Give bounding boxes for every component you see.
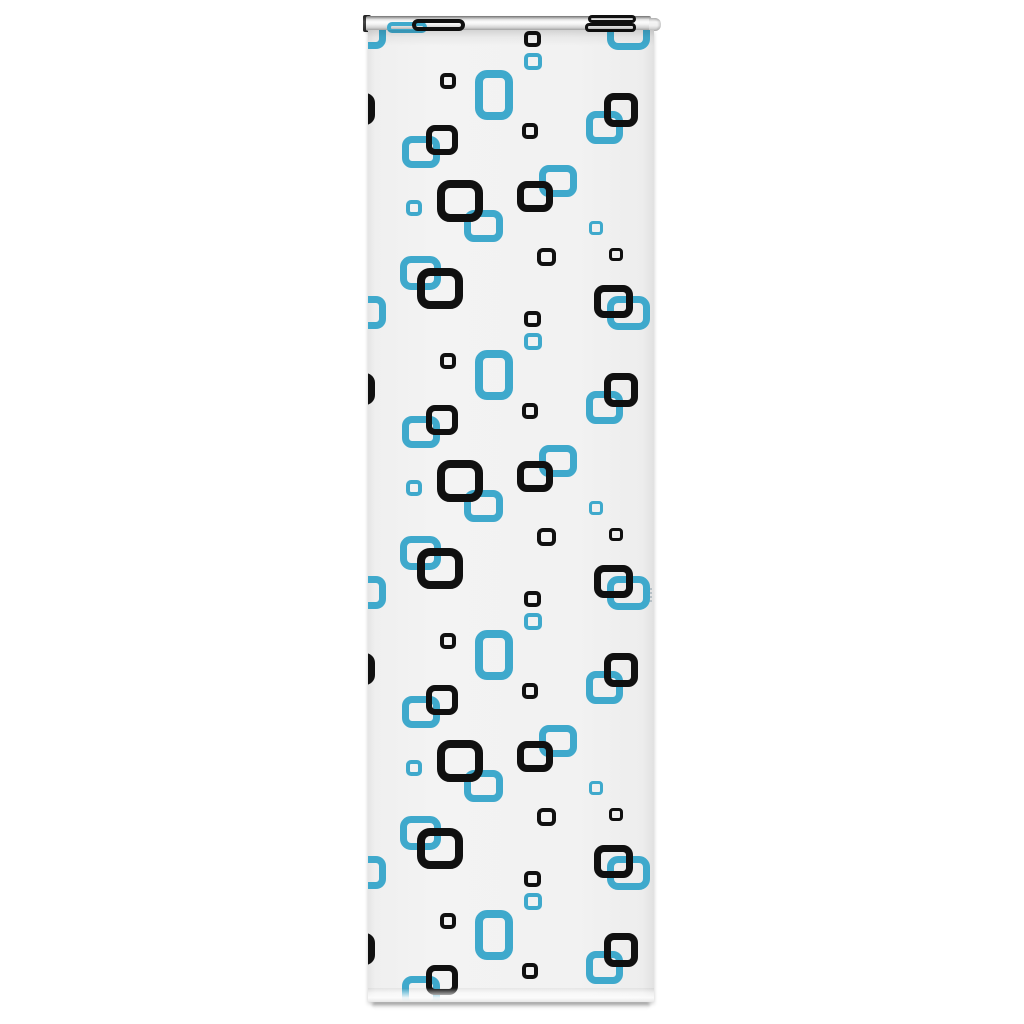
pattern-square-black [604,373,638,407]
pattern-square-black [426,125,458,155]
pattern-square-blue [368,576,386,609]
pattern-square-black [609,528,623,541]
pattern-square-blue [368,30,386,49]
pattern-square-black [609,248,623,261]
pattern-square-black [522,963,538,979]
pattern-square-blue [406,760,422,776]
pattern-square-black [440,913,456,929]
pattern-square-black [437,180,483,222]
pattern-square-blue [589,221,603,235]
pattern-square-black [368,93,375,125]
pattern-square-black [417,268,463,309]
wrapped-pattern-bar-black [412,19,465,31]
pattern-square-blue [589,501,603,515]
pattern-square-blue [475,350,513,400]
pattern-square-black [437,740,483,782]
pattern-square-black [368,933,375,965]
pattern-square-blue [475,630,513,680]
pattern-square-black [522,403,538,419]
pattern-square-black [426,685,458,715]
pattern-square-black [524,591,541,607]
pattern-square-blue [475,70,513,120]
pattern-square-blue [475,910,513,960]
pattern-square-black [537,808,556,826]
pattern-square-black [604,653,638,687]
pattern-square-black [609,808,623,821]
pattern-square-blue [524,613,542,630]
pattern-square-black [517,461,553,492]
pattern-square-black [537,528,556,546]
pattern-square-blue [524,333,542,350]
pattern-square-black [594,565,633,598]
pattern-square-black [524,311,541,327]
pattern-square-black [522,683,538,699]
pattern-square-black [437,460,483,502]
pattern-square-blue [368,856,386,889]
pattern-square-black [537,248,556,266]
pattern-square-black [417,548,463,589]
pattern-square-black [604,933,638,967]
pattern-square-black [524,871,541,887]
wrapped-pattern-bar-black [588,15,636,23]
pattern-square-black [517,741,553,772]
pattern-square-black [522,123,538,139]
pattern-square-blue [406,480,422,496]
pattern-square-black [594,845,633,878]
pattern-square-black [604,93,638,127]
blind-fabric [368,30,654,1002]
roller-blind-product-photo [0,0,1024,1024]
pattern-square-blue [589,781,603,795]
bottom-edge-shadow [372,1002,650,1009]
pattern-square-black [517,181,553,212]
pattern-square-black [426,405,458,435]
pattern-square-blue [368,296,386,329]
pattern-square-black [426,965,458,995]
pattern-square-black [524,31,541,47]
pattern-square-blue [607,30,650,50]
pattern-square-black [440,633,456,649]
pattern-square-blue [524,53,542,70]
pattern-square-black [368,653,375,685]
pattern-square-black [368,373,375,405]
pattern-square-black [417,828,463,869]
wrapped-pattern-bar-black [585,23,636,32]
pattern-square-black [594,285,633,318]
pattern-square-blue [524,893,542,910]
pattern-square-blue [406,200,422,216]
pattern-square-black [440,73,456,89]
pattern-square-black [440,353,456,369]
